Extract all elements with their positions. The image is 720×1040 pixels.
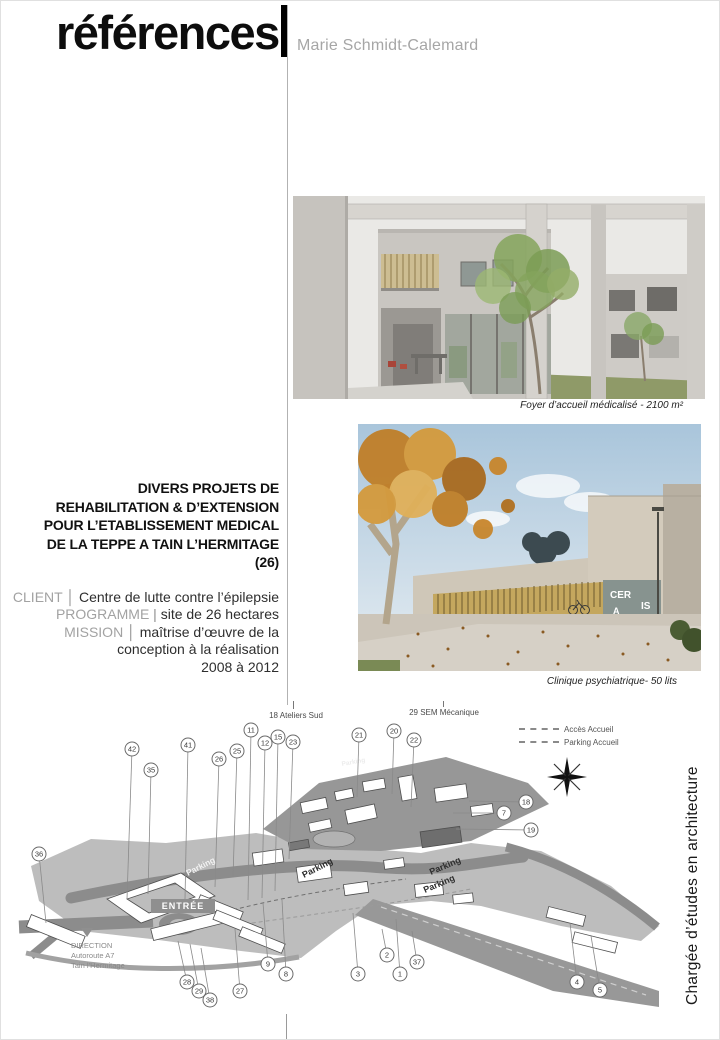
meta-programme: PROGRAMME | site de 26 hectares [11, 606, 279, 624]
photo2-ground [358, 614, 701, 671]
svg-text:20: 20 [390, 727, 398, 736]
label-leader-tick [443, 701, 444, 707]
svg-text:23: 23 [289, 738, 297, 747]
photo-clinique-caption: Clinique psychiatrique- 50 lits [301, 676, 677, 687]
map-parking-label: Parking [341, 757, 366, 768]
author-name: Marie Schmidt-Calemard [297, 37, 478, 55]
dashed-line-icon [519, 728, 559, 730]
meta-period: 2008 à 2012 [11, 659, 279, 677]
svg-text:37: 37 [413, 958, 421, 967]
bottom-divider-line [286, 1014, 287, 1040]
compass-rose-icon [547, 757, 587, 797]
legend-acces-accueil: Accès Accueil [519, 723, 613, 735]
project-block: DIVERS PROJETS DE REHABILITATION & D’EXT… [11, 479, 279, 676]
map-callout: 29 [190, 944, 206, 998]
project-meta: CLIENT │ Centre de lutte contre l’épilep… [11, 589, 279, 677]
svg-text:41: 41 [184, 741, 192, 750]
label-leader-tick [293, 701, 294, 709]
svg-text:15: 15 [274, 733, 282, 742]
svg-text:3: 3 [356, 970, 360, 979]
svg-text:4: 4 [575, 978, 579, 987]
project-title: DIVERS PROJETS DE REHABILITATION & D’EXT… [11, 479, 279, 572]
svg-text:29: 29 [195, 987, 203, 996]
map-label-sem: 29 SEM Mécanique [399, 708, 489, 717]
svg-text:7: 7 [502, 809, 506, 818]
svg-text:19: 19 [527, 826, 535, 835]
svg-text:27: 27 [236, 987, 244, 996]
svg-text:18: 18 [522, 798, 530, 807]
direction-arrow-icon [81, 928, 93, 937]
legend-parking-accueil: Parking Accueil [519, 736, 619, 748]
photo-clinique: CER IS A [358, 424, 701, 671]
svg-text:28: 28 [183, 978, 191, 987]
svg-text:38: 38 [206, 996, 214, 1005]
meta-mission: MISSION │ maîtrise d’œuvre de la concept… [11, 624, 279, 659]
dashed-line-icon [519, 741, 559, 743]
svg-text:22: 22 [410, 736, 418, 745]
svg-text:26: 26 [215, 755, 223, 764]
map-label-ateliers: 18 Ateliers Sud [251, 711, 341, 720]
svg-text:12: 12 [261, 739, 269, 748]
role-vertical-text: Chargée d’études en architecture [684, 763, 718, 1005]
signage-is: IS [641, 601, 651, 612]
photo-foyer [293, 196, 705, 399]
map-callout: 38 [201, 948, 217, 1007]
signage-cer: CER [610, 590, 632, 601]
vertical-divider-line [287, 5, 288, 705]
svg-text:9: 9 [266, 960, 270, 969]
photo2-glass-entry: CER IS A [603, 580, 661, 616]
entrance-label: ENTRÉE [151, 899, 215, 913]
svg-text:36: 36 [35, 850, 43, 859]
svg-text:5: 5 [598, 986, 602, 995]
svg-text:35: 35 [147, 766, 155, 775]
direction-text: DIRECTION Autoroute A7 Tain l’Hermitage [71, 941, 125, 970]
svg-text:1: 1 [398, 970, 402, 979]
portfolio-page: références Marie Schmidt-Calemard [0, 0, 720, 1040]
svg-text:21: 21 [355, 731, 363, 740]
map-callout: 2 [380, 929, 394, 962]
map-callout: 3 [351, 913, 365, 981]
photo-foyer-caption: Foyer d’accueil médicalisé - 2100 m² [301, 400, 683, 411]
svg-text:42: 42 [128, 745, 136, 754]
page-title: références [56, 5, 279, 60]
svg-text:25: 25 [233, 747, 241, 756]
meta-client: CLIENT │ Centre de lutte contre l’épilep… [11, 589, 279, 607]
svg-text:11: 11 [247, 726, 255, 735]
svg-text:2: 2 [385, 951, 389, 960]
svg-text:8: 8 [284, 970, 288, 979]
map-callout: 28 [178, 941, 194, 989]
